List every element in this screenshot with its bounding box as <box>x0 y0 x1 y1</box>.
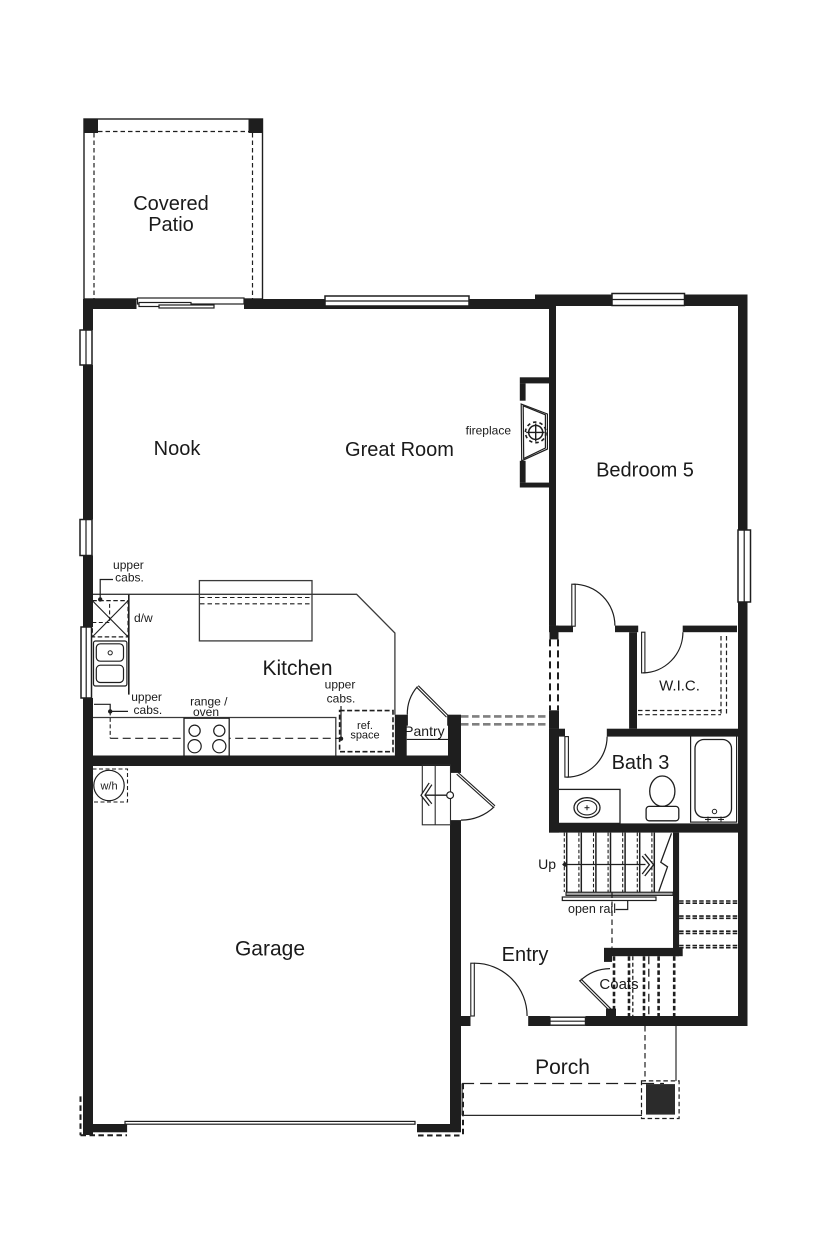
svg-text:Kitchen: Kitchen <box>262 657 332 680</box>
svg-text:Entry: Entry <box>502 944 549 966</box>
svg-text:cabs.: cabs. <box>115 571 144 585</box>
svg-text:Covered: Covered <box>133 193 209 215</box>
svg-text:Pantry: Pantry <box>404 723 444 739</box>
svg-text:fireplace: fireplace <box>466 424 512 438</box>
svg-text:upper: upper <box>131 690 162 704</box>
svg-text:Patio: Patio <box>148 214 194 236</box>
svg-text:Porch: Porch <box>535 1056 590 1079</box>
svg-text:Bedroom 5: Bedroom 5 <box>596 460 694 482</box>
svg-text:space: space <box>350 730 379 742</box>
svg-text:oven: oven <box>193 705 219 719</box>
svg-text:Coats: Coats <box>599 976 638 993</box>
svg-text:Up: Up <box>538 856 556 872</box>
svg-text:cabs.: cabs. <box>327 692 356 706</box>
svg-text:W.I.C.: W.I.C. <box>659 678 700 695</box>
svg-text:w/h: w/h <box>99 781 117 793</box>
svg-text:Nook: Nook <box>154 438 202 460</box>
svg-text:Great Room: Great Room <box>345 439 454 461</box>
svg-text:cabs.: cabs. <box>134 703 163 717</box>
svg-text:upper: upper <box>325 678 356 692</box>
svg-text:d/w: d/w <box>134 611 153 625</box>
svg-text:Garage: Garage <box>235 938 305 961</box>
svg-text:Bath 3: Bath 3 <box>612 752 670 774</box>
svg-text:open rail: open rail <box>568 902 616 916</box>
